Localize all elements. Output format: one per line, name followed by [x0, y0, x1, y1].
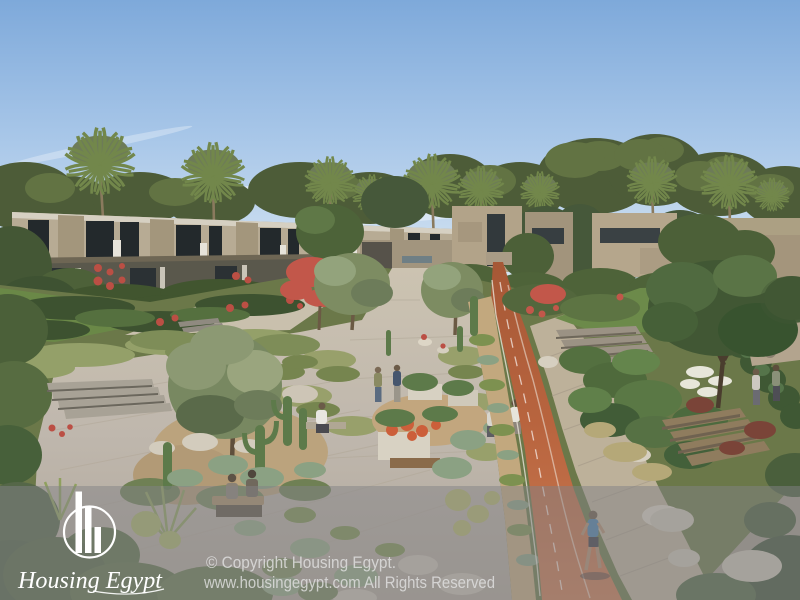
svg-text:© Copyright Housing Egypt.: © Copyright Housing Egypt.	[206, 554, 396, 572]
svg-text:www.housingegypt.com All Right: www.housingegypt.com All Rights Reserved	[203, 574, 495, 592]
svg-text:Housing Egypt: Housing Egypt	[17, 568, 163, 594]
